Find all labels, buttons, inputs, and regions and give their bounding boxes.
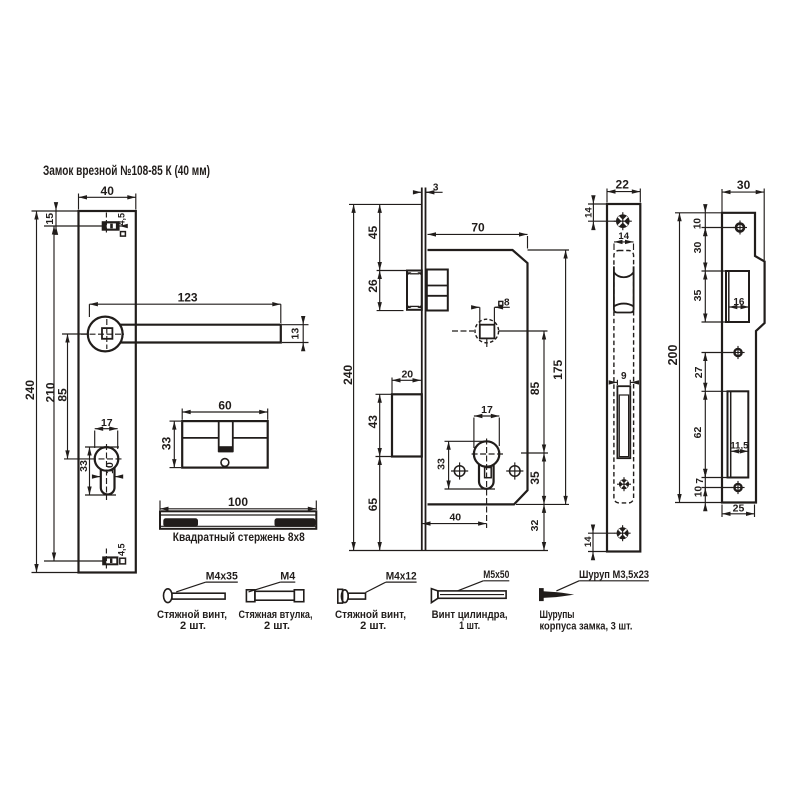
svg-text:65: 65	[366, 498, 380, 512]
svg-text:15: 15	[44, 213, 56, 225]
svg-text:45: 45	[366, 226, 380, 240]
svg-text:35: 35	[692, 290, 704, 302]
svg-text:25: 25	[733, 503, 745, 515]
svg-text:М5х50: М5х50	[483, 569, 509, 581]
svg-text:33: 33	[160, 437, 174, 451]
svg-text:123: 123	[178, 291, 198, 305]
svg-text:30: 30	[692, 242, 704, 254]
svg-text:17: 17	[101, 417, 113, 429]
svg-text:240: 240	[341, 364, 355, 384]
svg-text:40: 40	[101, 184, 115, 198]
svg-text:27: 27	[693, 366, 705, 378]
svg-text:43: 43	[366, 415, 380, 429]
svg-text:2 шт.: 2 шт.	[180, 620, 206, 632]
svg-text:1 шт.: 1 шт.	[459, 620, 480, 632]
svg-text:240: 240	[23, 380, 37, 400]
svg-text:13: 13	[289, 328, 301, 340]
svg-text:2 шт.: 2 шт.	[264, 620, 290, 632]
svg-text:33: 33	[436, 458, 448, 470]
svg-text:32: 32	[529, 520, 541, 532]
svg-text:35: 35	[528, 471, 542, 485]
svg-text:М4х12: М4х12	[386, 570, 417, 582]
svg-text:14: 14	[583, 207, 594, 218]
svg-text:40: 40	[449, 511, 461, 523]
svg-text:9: 9	[621, 371, 627, 382]
svg-text:10: 10	[104, 462, 116, 474]
svg-text:Квадратный стержень 8х8: Квадратный стержень 8х8	[173, 532, 306, 544]
svg-text:М4: М4	[280, 570, 296, 582]
svg-text:17: 17	[481, 404, 493, 416]
svg-text:М4х35: М4х35	[206, 570, 238, 582]
svg-text:14: 14	[618, 231, 629, 242]
svg-text:85: 85	[56, 388, 70, 402]
svg-text:14: 14	[583, 536, 594, 547]
svg-text:Замок врезной №108-85 К (40: Замок врезной №108-85 К (40 мм)	[43, 163, 210, 178]
svg-text:11,5: 11,5	[730, 441, 749, 452]
svg-text:70: 70	[471, 221, 485, 235]
svg-text:62: 62	[692, 427, 704, 439]
svg-text:20: 20	[401, 369, 413, 381]
svg-text:Шуруп М3,5х23: Шуруп М3,5х23	[579, 569, 649, 581]
svg-text:2 шт.: 2 шт.	[360, 620, 386, 632]
svg-text:8: 8	[504, 298, 510, 309]
svg-text:30: 30	[737, 178, 751, 192]
svg-text:7: 7	[695, 478, 706, 484]
svg-text:4,5: 4,5	[116, 213, 126, 226]
svg-text:85: 85	[528, 382, 542, 396]
svg-text:200: 200	[666, 345, 680, 366]
svg-text:корпуса замка, 3 шт.: корпуса замка, 3 шт.	[540, 620, 633, 632]
svg-text:16: 16	[733, 297, 745, 308]
svg-text:22: 22	[616, 178, 630, 192]
svg-text:3: 3	[433, 182, 439, 193]
svg-text:4,5: 4,5	[117, 544, 127, 557]
svg-text:100: 100	[228, 495, 248, 509]
svg-text:10: 10	[693, 218, 704, 230]
svg-text:175: 175	[551, 359, 565, 379]
svg-text:60: 60	[218, 398, 232, 412]
svg-text:33: 33	[78, 460, 90, 472]
svg-text:10: 10	[694, 486, 705, 498]
svg-text:26: 26	[366, 279, 380, 293]
svg-text:Шурупы: Шурупы	[540, 609, 575, 621]
